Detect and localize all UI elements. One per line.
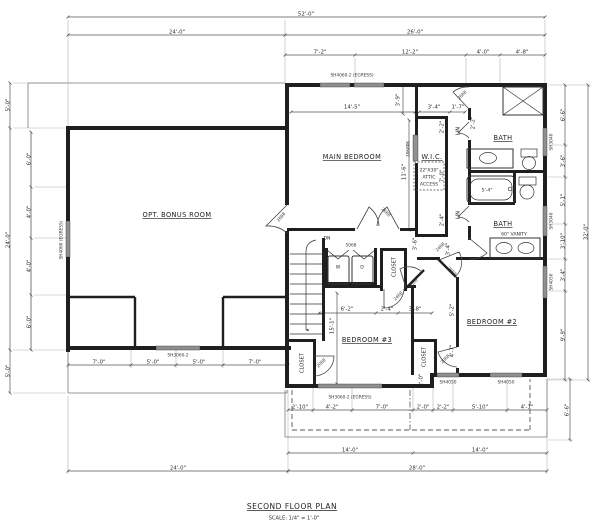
dim-label: 5'-0": [147, 360, 160, 366]
room-label: BEDROOM #3: [342, 336, 392, 344]
plan-title: SECOND FLOOR PLAN: [247, 502, 337, 511]
window-main-bedroom-b: [354, 83, 384, 87]
dim-label: 4'-8": [516, 50, 529, 56]
toilet-upper-bath: [521, 149, 537, 170]
door-bath-lower: [469, 238, 487, 259]
toilet-lower-bath: [519, 177, 536, 199]
title-block: SECOND FLOOR PLAN SCALE: 1/4" = 1'-0": [247, 502, 337, 522]
annotation-label: ACCESS: [420, 182, 438, 188]
annotation-label: 60" VANITY: [501, 232, 527, 238]
window-label: SH3060-2 (EGRESS): [328, 395, 371, 401]
dim-label: 4'-2": [326, 405, 339, 411]
dim-label: 2'-10": [292, 405, 308, 411]
dim-label: 14'-0": [342, 448, 358, 454]
window-bedroom3: [318, 384, 382, 388]
window-bedroom2-a: [437, 373, 459, 377]
room-label: LIN: [456, 211, 462, 219]
dim-label: 52'-0": [298, 12, 314, 18]
dim-label: 15'-1": [330, 318, 336, 334]
dim-label: 3'-4": [446, 243, 452, 256]
door-label: 2068: [315, 357, 327, 369]
dim-label: 14'-5": [344, 105, 360, 111]
window-label: SH3040: [549, 212, 555, 229]
room-label: MAIN BEDROOM: [323, 153, 381, 161]
dim-label: 24'-0": [169, 30, 185, 36]
annotation-label: DN: [324, 236, 331, 242]
dim-label: 9'-9": [561, 329, 567, 342]
window-bath-upper: [543, 128, 547, 156]
annotation-label: ATTIC: [423, 175, 436, 181]
door-swings: [266, 87, 487, 376]
dim-label: 24'-0": [170, 466, 186, 472]
room-label: BATH: [493, 220, 512, 228]
window-bonus-bottom: [156, 346, 200, 350]
room-label: LIN: [456, 127, 462, 135]
plan-scale: SCALE: 1/4" = 1'-0": [269, 516, 320, 522]
dim-label: 11'-6": [402, 164, 408, 180]
dim-label: 5'-2": [450, 304, 456, 317]
dim-label: 3'-6": [413, 238, 419, 251]
dim-label: 4'-0": [477, 50, 490, 56]
window-label: SH3040: [549, 133, 555, 150]
bifold-laundry: [327, 250, 375, 259]
dim-label: 5'-0": [193, 360, 206, 366]
door-main-bedroom-left: [357, 207, 379, 229]
dim-label: 5'-0": [6, 365, 12, 378]
window-label: SH4050: [440, 380, 457, 386]
dim-label: 26'-0": [407, 30, 423, 36]
dim-label: 5'-1": [561, 194, 567, 207]
room-label: W.I.C.: [422, 153, 443, 161]
dim-label: 6'-0": [27, 153, 33, 166]
labels: 52'-0"24'-0"26'-0"7'-2"12'-2"4'-0"4'-8"5…: [6, 12, 590, 472]
dim-label: 3'-9": [396, 94, 402, 107]
annotation-label: D: [360, 265, 364, 271]
dim-label: 2'-2": [440, 121, 446, 134]
dim-label: 2'-0": [419, 374, 425, 387]
dim-label: 2'-4": [381, 307, 394, 313]
vanity-lower-bath: [490, 238, 540, 258]
dim-label: 2'-2": [471, 117, 477, 130]
annotation-label: 22"X30": [419, 168, 438, 174]
dim-label: 3'-4": [428, 105, 441, 111]
door-label: 2668: [276, 211, 288, 223]
dim-label: 5'-0": [6, 99, 12, 112]
annotation-label: 5'-4": [482, 188, 493, 194]
dim-label: 12'-2": [402, 50, 418, 56]
door-label: 2668: [456, 89, 468, 101]
window-bedroom2-b: [490, 373, 522, 377]
annotation-label: W: [336, 265, 341, 271]
dim-label: 5'-10": [472, 405, 488, 411]
dim-label: 2'-2": [437, 405, 450, 411]
vanity-upper-bath: [467, 149, 513, 168]
window-bedroom2-right: [543, 266, 547, 298]
dim-label: 4'-7": [450, 345, 456, 358]
room-label: CLOSET: [392, 256, 398, 277]
dim-label: 2'-0": [417, 405, 430, 411]
dim-label: 6'-6": [561, 109, 567, 122]
dim-label: 7'-0": [376, 405, 389, 411]
dim-label: 1'-7": [452, 105, 465, 111]
window-label: SH4050: [498, 380, 515, 386]
dim-label: 14'-0": [472, 448, 488, 454]
dim-label: 7'-0": [93, 360, 106, 366]
second-floor-plan-drawing: 52'-0"24'-0"26'-0"7'-2"12'-2"4'-0"4'-8"5…: [0, 0, 600, 531]
dim-label: 32'-0": [584, 224, 590, 240]
window-label: SH4050: [549, 273, 555, 290]
window-label: SH4060-2 (EGRESS): [330, 73, 373, 79]
dim-label: 3'-10": [561, 233, 567, 249]
room-label: OPT. BONUS ROOM: [143, 211, 212, 219]
window-main-bedroom-a: [320, 83, 350, 87]
stairs: [290, 240, 322, 334]
dim-label: 24'-0": [6, 232, 12, 248]
room-label: BEDROOM #2: [467, 318, 517, 326]
dim-label: 6'-2": [341, 307, 354, 313]
dim-label: 7'-2": [314, 50, 327, 56]
window-bath-lower: [543, 206, 547, 236]
dim-label: 4'-1": [521, 405, 534, 411]
door-label: 2868PK: [406, 141, 412, 158]
dim-label: 7'-0": [249, 360, 262, 366]
window-bonus-left: [66, 221, 70, 257]
dim-label: 3'-4": [561, 269, 567, 282]
pocket-door-wic: [413, 135, 418, 161]
dim-label: 4'-0": [27, 260, 33, 273]
dim-label: 3'-6": [561, 155, 567, 168]
dim-label: 2'-4": [440, 214, 446, 227]
dim-label: 28'-0": [409, 466, 425, 472]
door-label: 5068: [346, 243, 357, 249]
room-label: CLOSET: [300, 352, 306, 373]
dim-label: 3'-8": [409, 307, 422, 313]
dim-label: 6'-6": [565, 404, 571, 417]
shower: [503, 87, 543, 115]
dim-label: 6'-0": [27, 316, 33, 329]
room-label: CLOSET: [422, 346, 428, 367]
dim-label: 7'-0": [440, 170, 446, 183]
window-label: SH4060 (EGRESS): [59, 220, 65, 259]
room-label: BATH: [493, 134, 512, 142]
floor-plan-page: 52'-0"24'-0"26'-0"7'-2"12'-2"4'-0"4'-8"5…: [0, 0, 600, 531]
dim-label: 4'-0": [27, 206, 33, 219]
window-label: SH3060-2: [167, 353, 188, 359]
